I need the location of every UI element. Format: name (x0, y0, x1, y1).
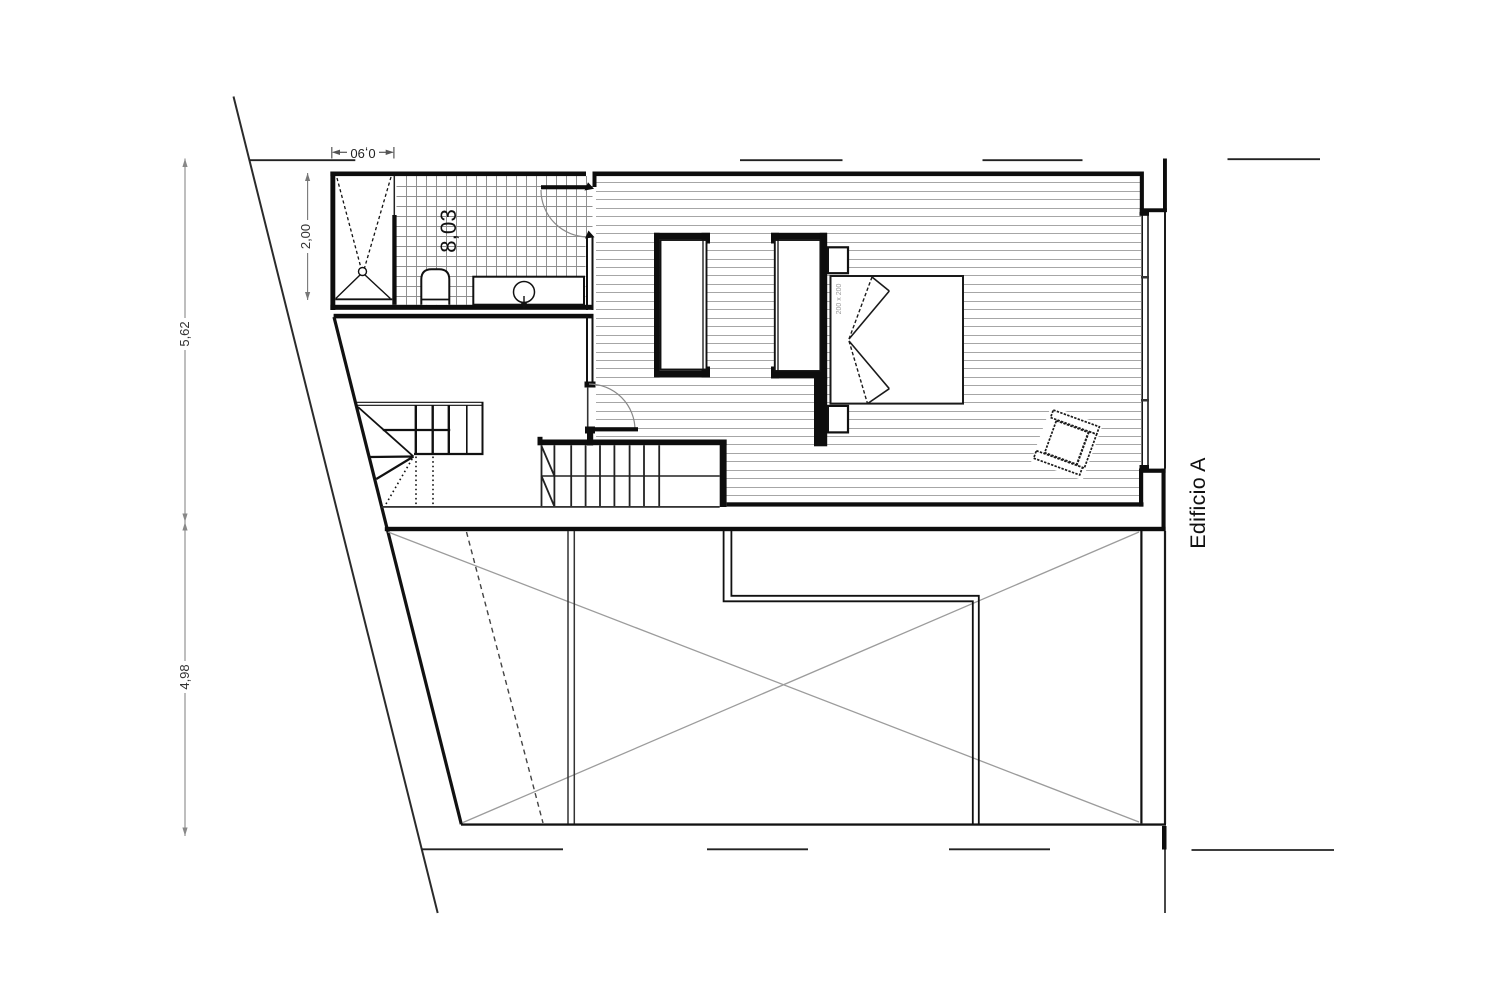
svg-text:5,62: 5,62 (177, 321, 192, 346)
svg-text:2,00: 2,00 (298, 224, 313, 249)
svg-text:4,98: 4,98 (177, 664, 192, 689)
svg-text:8,03: 8,03 (436, 209, 461, 253)
svg-text:Edificio A: Edificio A (1186, 457, 1210, 549)
svg-text:200 x 200: 200 x 200 (836, 284, 843, 315)
svg-text:0,90: 0,90 (350, 146, 375, 161)
